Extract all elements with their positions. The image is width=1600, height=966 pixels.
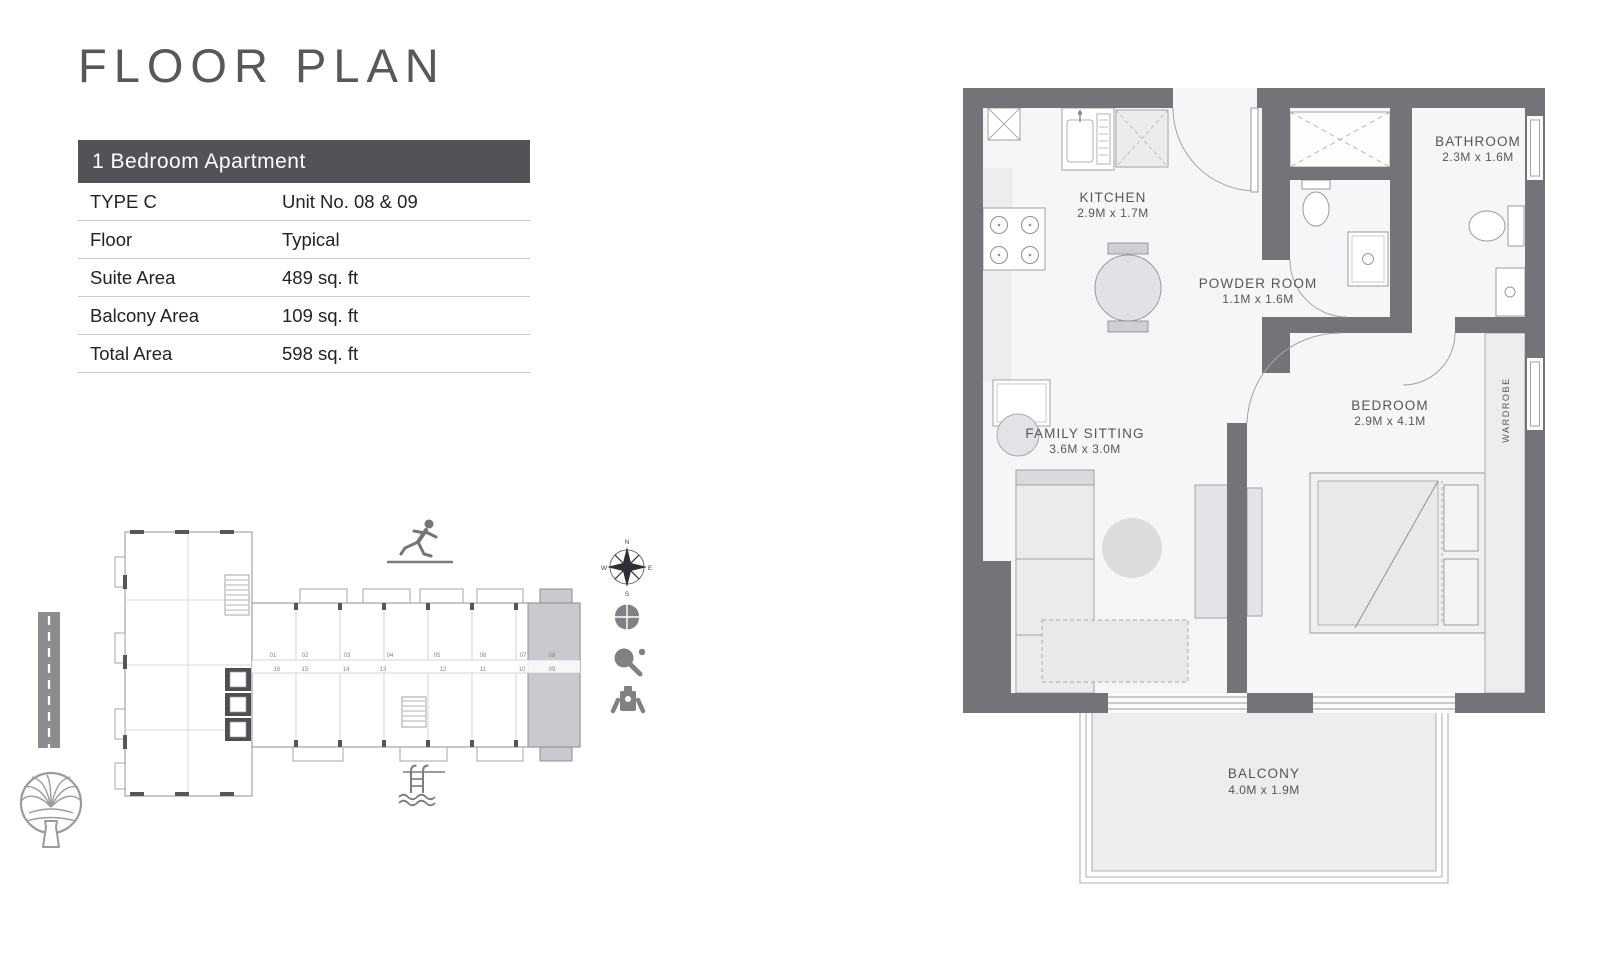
- svg-text:09: 09: [549, 667, 556, 673]
- svg-text:WARDROBE: WARDROBE: [1501, 377, 1511, 442]
- toilet: [1302, 180, 1330, 226]
- powder-room-label: POWDER ROOM: [1199, 276, 1318, 291]
- svg-text:05: 05: [434, 653, 441, 659]
- palm-jumeirah-logo: [16, 770, 86, 850]
- table-row: Total Area 598 sq. ft: [78, 335, 530, 373]
- road-graphic: [38, 612, 60, 748]
- row-label: Suite Area: [78, 267, 282, 289]
- area-rug: [1102, 518, 1162, 578]
- svg-text:W: W: [601, 565, 608, 572]
- pillow: [1444, 485, 1478, 551]
- row-label: Balcony Area: [78, 305, 282, 327]
- row-label: Total Area: [78, 343, 282, 365]
- svg-text:07: 07: [520, 653, 527, 659]
- running-track-icon: [388, 520, 452, 563]
- unit-info-table: 1 Bedroom Apartment TYPE C Unit No. 08 &…: [78, 140, 530, 373]
- svg-text:02: 02: [302, 653, 309, 659]
- table-row: Floor Typical: [78, 221, 530, 259]
- unit-type-header: 1 Bedroom Apartment: [78, 140, 530, 183]
- coffee-table: [1042, 620, 1188, 682]
- basketball-icon: [614, 605, 640, 630]
- row-label: TYPE C: [78, 191, 282, 213]
- window: [1527, 116, 1543, 180]
- table-row: Suite Area 489 sq. ft: [78, 259, 530, 297]
- svg-text:10: 10: [519, 667, 526, 673]
- elevator-core: [225, 668, 251, 741]
- kitchen-dims: 2.9M x 1.7M: [1077, 206, 1149, 220]
- svg-text:14: 14: [343, 667, 350, 673]
- family-sitting-label: FAMILY SITTING: [1025, 426, 1144, 441]
- window: [1527, 358, 1543, 430]
- row-value: Unit No. 08 & 09: [282, 191, 530, 213]
- svg-text:16: 16: [274, 667, 281, 673]
- family-sitting-dims: 3.6M x 3.0M: [1049, 442, 1121, 456]
- bedroom-dims: 2.9M x 4.1M: [1354, 414, 1426, 428]
- svg-text:S: S: [625, 591, 630, 598]
- highlighted-units-block: [528, 603, 580, 747]
- kitchen-stove: [983, 208, 1045, 270]
- svg-text:12: 12: [440, 667, 447, 673]
- sliding-door: [1108, 693, 1247, 713]
- key-plan-left-block: [115, 530, 252, 796]
- wardrobe: WARDROBE: [1485, 333, 1525, 693]
- row-value: Typical: [282, 229, 530, 251]
- gym-icon: [613, 686, 643, 711]
- stairs: [402, 697, 426, 727]
- bedroom-label: BEDROOM: [1351, 398, 1428, 413]
- floor-plan: WARDROBE: [950, 80, 1560, 895]
- svg-text:06: 06: [480, 653, 487, 659]
- bathroom-dims: 2.3M x 1.6M: [1442, 150, 1514, 164]
- table-row: Balcony Area 109 sq. ft: [78, 297, 530, 335]
- washbasin: [1348, 232, 1388, 286]
- svg-text:15: 15: [302, 667, 309, 673]
- svg-text:08: 08: [549, 653, 556, 659]
- sliding-door: [1313, 693, 1455, 713]
- compass-icon: N E S W: [601, 539, 653, 598]
- fridge: [1116, 110, 1168, 167]
- brochure-page: { "title": "FLOOR PLAN", "unit_table": {…: [0, 0, 1600, 966]
- svg-text:13: 13: [380, 667, 387, 673]
- dresser: [1247, 488, 1262, 616]
- bathroom-label: BATHROOM: [1435, 134, 1521, 149]
- svg-text:01: 01: [270, 653, 277, 659]
- stairs: [225, 575, 249, 615]
- balcony-group: [1080, 713, 1448, 883]
- powder-room-dims: 1.1M x 1.6M: [1222, 292, 1294, 306]
- row-value: 598 sq. ft: [282, 343, 530, 365]
- svg-text:N: N: [625, 539, 630, 546]
- bed: [1310, 473, 1486, 633]
- table-row: TYPE C Unit No. 08 & 09: [78, 183, 530, 221]
- key-plan-wing: 01 02 03 04 05 06 07 08 16 15 14 13 12 1…: [252, 589, 580, 761]
- row-label: Floor: [78, 229, 282, 251]
- swimming-pool-icon: [399, 766, 445, 806]
- key-plan: 01 02 03 04 05 06 07 08 16 15 14 13 12 1…: [100, 505, 660, 835]
- pillow: [1444, 559, 1478, 625]
- kitchen-sink: [1062, 108, 1114, 170]
- svg-text:03: 03: [344, 653, 351, 659]
- kitchen-label: KITCHEN: [1080, 190, 1147, 205]
- svg-text:E: E: [648, 565, 653, 572]
- svg-text:04: 04: [387, 653, 394, 659]
- row-value: 109 sq. ft: [282, 305, 530, 327]
- page-title: FLOOR PLAN: [78, 38, 446, 93]
- shower: [1290, 112, 1390, 167]
- svg-text:11: 11: [480, 667, 487, 673]
- row-value: 489 sq. ft: [282, 267, 530, 289]
- balcony-dims: 4.0M x 1.9M: [1228, 783, 1300, 797]
- balcony-label: BALCONY: [1228, 766, 1300, 781]
- washbasin: [1496, 268, 1525, 316]
- service-shaft: [988, 108, 1020, 140]
- table-tennis-icon: [615, 649, 646, 675]
